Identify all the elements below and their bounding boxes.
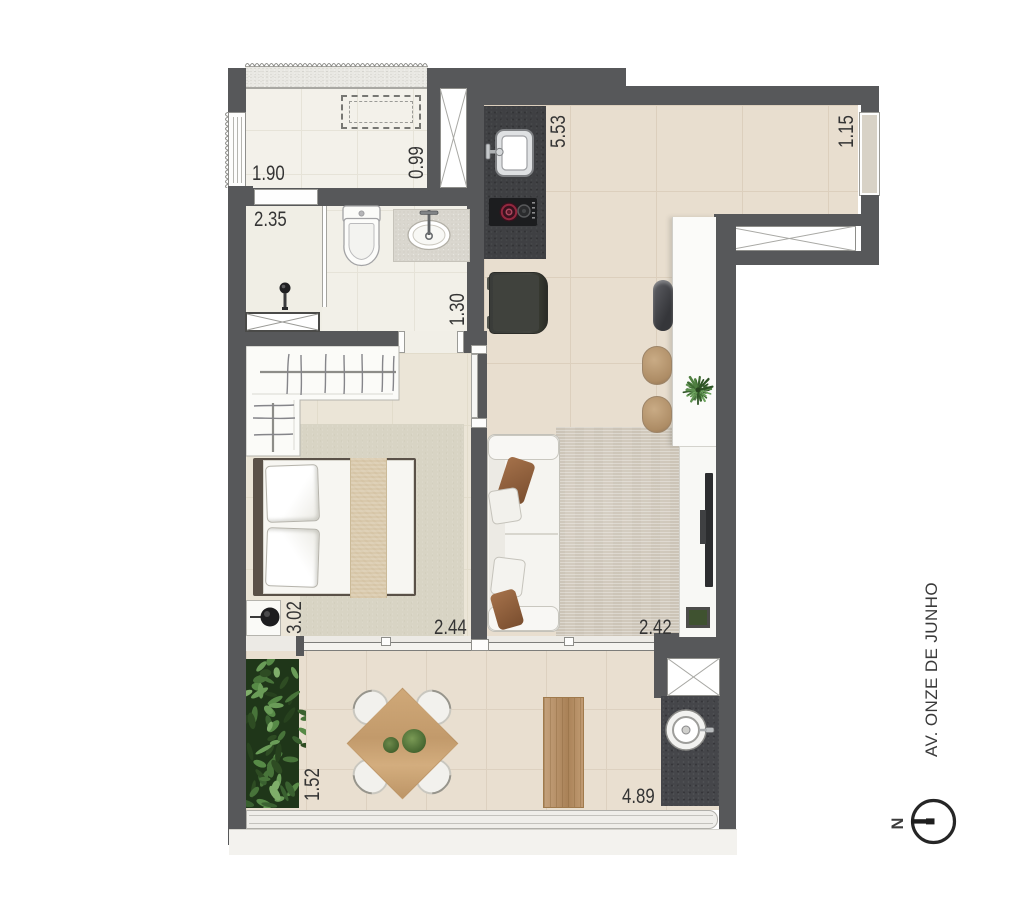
svg-text:N: N <box>889 818 907 830</box>
